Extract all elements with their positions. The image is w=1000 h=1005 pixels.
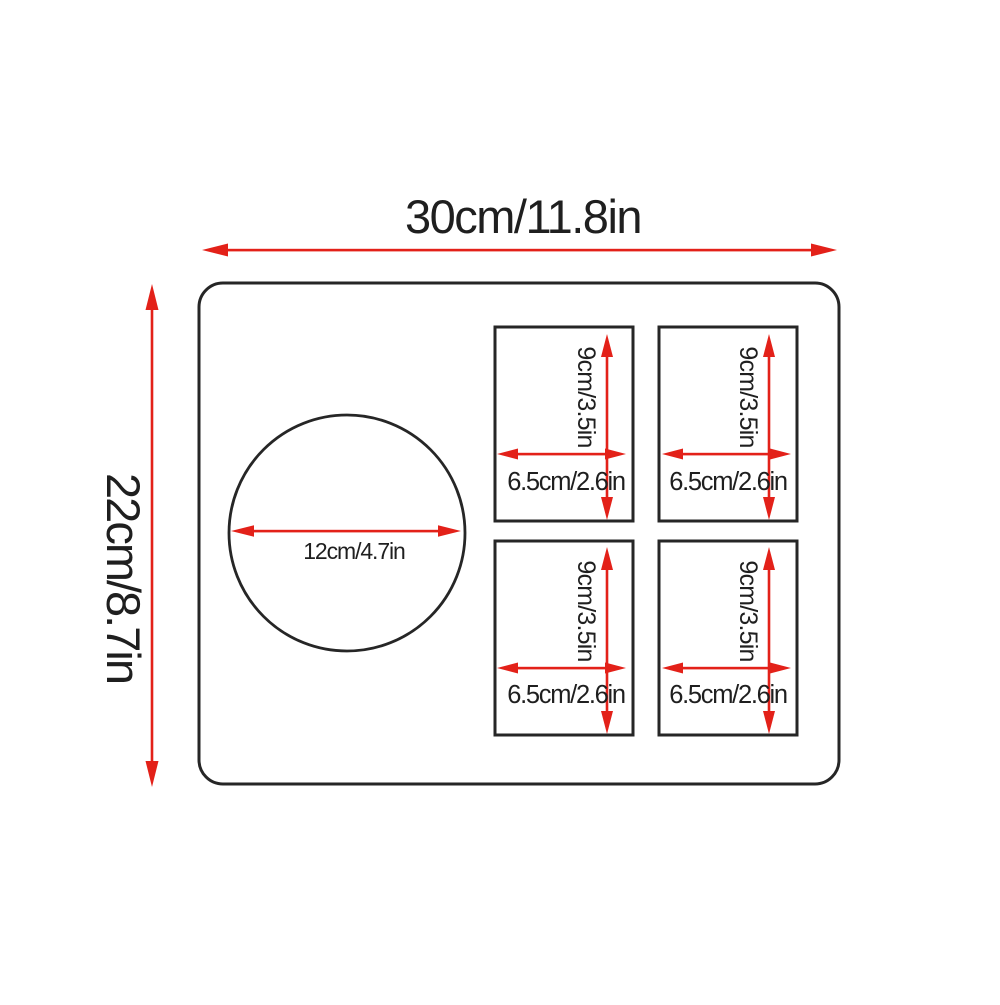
svg-text:12cm/4.7in: 12cm/4.7in: [303, 538, 405, 564]
svg-text:9cm/3.5in: 9cm/3.5in: [734, 560, 762, 661]
svg-text:6.5cm/2.6in: 6.5cm/2.6in: [669, 468, 787, 496]
svg-text:6.5cm/2.6in: 6.5cm/2.6in: [669, 681, 787, 709]
svg-text:22cm/8.7in: 22cm/8.7in: [97, 473, 150, 683]
svg-text:6.5cm/2.6in: 6.5cm/2.6in: [507, 681, 625, 709]
svg-text:30cm/11.8in: 30cm/11.8in: [405, 190, 641, 243]
svg-text:9cm/3.5in: 9cm/3.5in: [572, 560, 600, 661]
svg-text:9cm/3.5in: 9cm/3.5in: [572, 346, 600, 447]
svg-text:6.5cm/2.6in: 6.5cm/2.6in: [507, 468, 625, 496]
svg-text:9cm/3.5in: 9cm/3.5in: [734, 346, 762, 447]
